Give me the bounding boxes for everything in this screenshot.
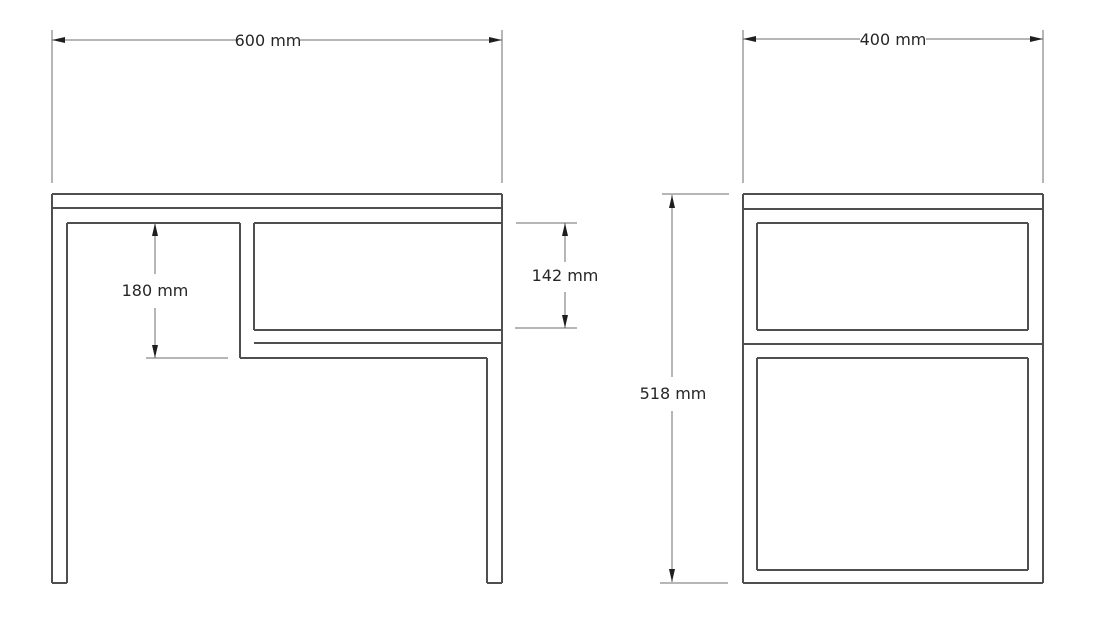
- side-view: 400 mm 518 mm: [640, 30, 1043, 583]
- dimension-arrowhead-icon: [743, 36, 756, 42]
- drawing-canvas: 600 mm 180 mm 142 mm 400 mm 518 mm: [0, 0, 1096, 619]
- side-view-outline: [743, 194, 1043, 583]
- front-overall-width-label: 600 mm: [235, 31, 302, 50]
- dimension-arrowhead-icon: [152, 223, 158, 236]
- front-left-opening-height-label: 180 mm: [122, 281, 189, 300]
- dimension-arrowhead-icon: [152, 345, 158, 358]
- dimension-arrowhead-icon: [1030, 36, 1043, 42]
- dimension-arrowhead-icon: [562, 223, 568, 236]
- dimension-arrowhead-icon: [669, 569, 675, 582]
- side-overall-height-label: 518 mm: [640, 384, 707, 403]
- dimension-arrowhead-icon: [52, 37, 65, 43]
- dimension-arrowhead-icon: [489, 37, 502, 43]
- front-view: 600 mm 180 mm 142 mm: [52, 30, 598, 583]
- technical-drawing: 600 mm 180 mm 142 mm 400 mm 518 mm: [0, 0, 1096, 619]
- dimension-arrowhead-icon: [562, 315, 568, 328]
- front-compartment-height-label: 142 mm: [532, 266, 599, 285]
- side-view-dimensions: [660, 30, 1043, 583]
- front-view-outline: [52, 194, 502, 583]
- dimension-arrowhead-icon: [669, 195, 675, 208]
- side-overall-depth-label: 400 mm: [860, 30, 927, 49]
